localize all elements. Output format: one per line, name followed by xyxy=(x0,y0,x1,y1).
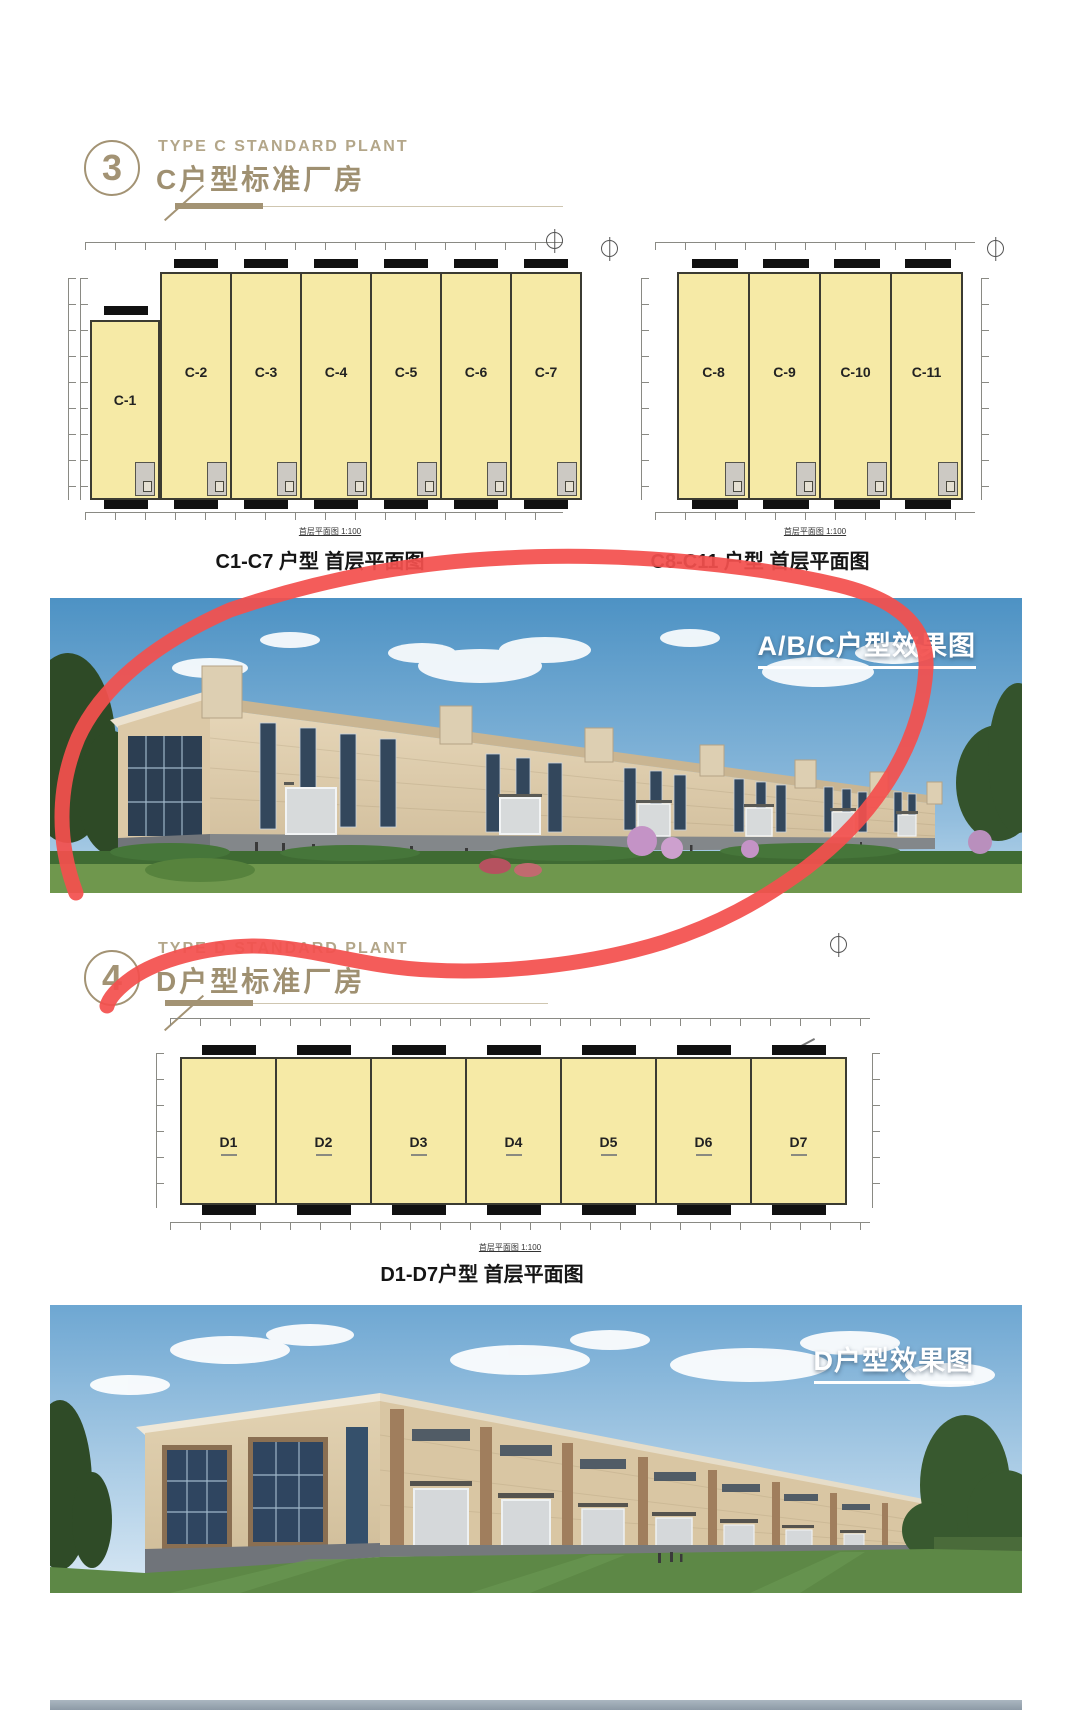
area-note xyxy=(221,1154,237,1156)
area-note xyxy=(411,1154,427,1156)
area-note xyxy=(696,1154,712,1156)
plan-unit-c7: C-7 xyxy=(510,272,582,500)
forklift-symbol xyxy=(946,481,955,492)
entrance-door xyxy=(104,306,148,315)
caption-c1-c7: C1-C7 户型 首层平面图 xyxy=(216,545,425,574)
forklift-symbol xyxy=(215,481,224,492)
entrance-door xyxy=(763,500,809,509)
brochure-page: 3 TYPE C STANDARD PLANT C户型标准厂房 C-1 C-2 … xyxy=(0,0,1080,1710)
entrance-door xyxy=(582,1045,636,1055)
floorplan-d1-d7: D1 D2 D3 D4 D5 D6 D7 xyxy=(150,1008,890,1258)
plan-unit-c6: C-6 xyxy=(440,272,512,500)
plan-unit-d4: D4 xyxy=(465,1057,562,1205)
entrance-door xyxy=(384,259,428,268)
area-note xyxy=(506,1154,522,1156)
dimension-ruler-left xyxy=(156,1053,164,1208)
plan-unit-c1: C-1 xyxy=(90,320,160,500)
section4-number: 4 xyxy=(102,957,122,999)
north-compass-icon xyxy=(546,232,563,249)
next-image-edge xyxy=(50,1700,1022,1710)
dimension-ruler-right xyxy=(872,1053,880,1208)
plan-unit-d5: D5 xyxy=(560,1057,657,1205)
floorplan-c8-c11: C-8 C-9 C-10 C-11 首层平面图 1:100 xyxy=(615,228,995,538)
entrance-door xyxy=(834,500,880,509)
caption-c8-c11: C8-C11 户型 首层平面图 xyxy=(651,545,870,574)
plan-unit-c5: C-5 xyxy=(370,272,442,500)
area-note xyxy=(601,1154,617,1156)
plan-scale-note: 首层平面图 1:100 xyxy=(299,526,361,537)
north-compass-icon xyxy=(601,240,618,257)
plan-unit-d7: D7 xyxy=(750,1057,847,1205)
entrance-door xyxy=(692,259,738,268)
section4-header: 4 xyxy=(84,950,140,1006)
entrance-door xyxy=(454,500,498,509)
section3-rule-thick xyxy=(175,203,263,209)
plan-scale-note: 首层平面图 1:100 xyxy=(479,1242,541,1253)
entrance-door xyxy=(174,500,218,509)
section4-title-en: TYPE D STANDARD PLANT xyxy=(158,940,409,958)
photo-label-abc: A/B/C户型效果图 xyxy=(758,624,977,669)
dimension-ruler-left xyxy=(641,278,649,500)
entrance-door xyxy=(174,259,218,268)
plan-unit-c2: C-2 xyxy=(160,272,232,500)
dimension-ruler-bottom xyxy=(655,512,975,520)
dimension-ruler-bottom xyxy=(170,1222,870,1230)
entrance-door xyxy=(905,259,951,268)
photo-label-d: D户型效果图 xyxy=(814,1339,975,1384)
dimension-ruler-left2 xyxy=(80,278,88,500)
section3-number-badge: 3 xyxy=(84,140,140,196)
plan-unit-c4: C-4 xyxy=(300,272,372,500)
entrance-door xyxy=(582,1205,636,1215)
plan-unit-c8: C-8 xyxy=(677,272,750,500)
forklift-symbol xyxy=(733,481,742,492)
section3-number: 3 xyxy=(102,147,122,189)
dimension-ruler-right xyxy=(981,278,989,500)
floorplan-c1-c7: C-1 C-2 C-3 C-4 C-5 C-6 C-7 xyxy=(60,228,595,538)
entrance-door xyxy=(524,259,568,268)
section4-rule-thin xyxy=(253,1003,548,1004)
plan-unit-c10: C-10 xyxy=(819,272,892,500)
plan-scale-note: 首层平面图 1:100 xyxy=(784,526,846,537)
plan-unit-c3: C-3 xyxy=(230,272,302,500)
dimension-ruler-top xyxy=(170,1018,870,1026)
rendering-abc-photo: A/B/C户型效果图 xyxy=(50,598,1022,893)
entrance-door xyxy=(487,1205,541,1215)
rendering-d-photo: D户型效果图 xyxy=(50,1305,1022,1593)
area-note xyxy=(316,1154,332,1156)
forklift-symbol xyxy=(875,481,884,492)
north-compass-icon xyxy=(987,240,1004,257)
forklift-symbol xyxy=(143,481,152,492)
entrance-door xyxy=(677,1205,731,1215)
forklift-symbol xyxy=(804,481,813,492)
entrance-door xyxy=(763,259,809,268)
section4-rule-thick xyxy=(165,1000,253,1006)
section3-title-en: TYPE C STANDARD PLANT xyxy=(158,138,409,156)
section4-title-cn: D户型标准厂房 xyxy=(156,960,365,1000)
plan-unit-d2: D2 xyxy=(275,1057,372,1205)
entrance-door xyxy=(297,1045,351,1055)
entrance-door xyxy=(314,259,358,268)
dimension-ruler-left xyxy=(68,278,76,500)
plan-unit-c9: C-9 xyxy=(748,272,821,500)
dimension-ruler-top xyxy=(655,242,975,250)
forklift-symbol xyxy=(565,481,574,492)
section3-rule-thin xyxy=(263,206,563,207)
entrance-door xyxy=(834,259,880,268)
plan-unit-d3: D3 xyxy=(370,1057,467,1205)
section4-number-badge: 4 xyxy=(84,950,140,1006)
entrance-door xyxy=(524,500,568,509)
entrance-door xyxy=(202,1045,256,1055)
forklift-symbol xyxy=(425,481,434,492)
entrance-door xyxy=(392,1045,446,1055)
plan-unit-d1: D1 xyxy=(180,1057,277,1205)
plan-unit-d6: D6 xyxy=(655,1057,752,1205)
north-compass-icon xyxy=(830,936,847,953)
entrance-door xyxy=(384,500,428,509)
forklift-symbol xyxy=(285,481,294,492)
forklift-symbol xyxy=(495,481,504,492)
entrance-door xyxy=(244,259,288,268)
caption-d1-d7: D1-D7户型 首层平面图 xyxy=(380,1258,583,1287)
dimension-ruler-top xyxy=(85,242,563,250)
entrance-door xyxy=(487,1045,541,1055)
section3-title-cn: C户型标准厂房 xyxy=(156,158,365,198)
entrance-door xyxy=(314,500,358,509)
entrance-door xyxy=(905,500,951,509)
section3-header: 3 xyxy=(84,140,140,196)
plan-unit-c11: C-11 xyxy=(890,272,963,500)
entrance-door xyxy=(677,1045,731,1055)
dimension-ruler-bottom xyxy=(85,512,563,520)
entrance-door xyxy=(202,1205,256,1215)
entrance-door xyxy=(104,500,148,509)
forklift-symbol xyxy=(355,481,364,492)
area-note xyxy=(791,1154,807,1156)
entrance-door xyxy=(772,1205,826,1215)
entrance-door xyxy=(244,500,288,509)
entrance-door xyxy=(772,1045,826,1055)
entrance-door xyxy=(454,259,498,268)
entrance-door xyxy=(692,500,738,509)
entrance-door xyxy=(297,1205,351,1215)
entrance-door xyxy=(392,1205,446,1215)
